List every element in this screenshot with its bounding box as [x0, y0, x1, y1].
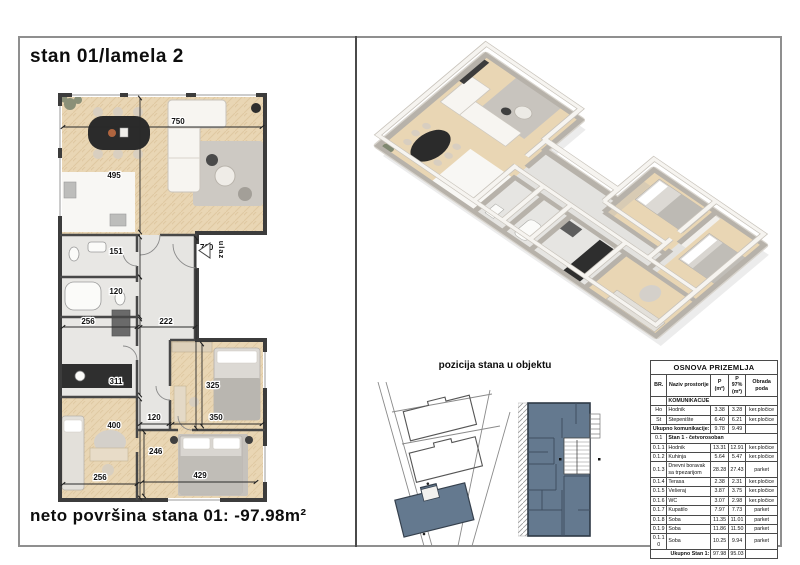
net-area-label: neto površina stana 01: -97.98m²: [30, 506, 306, 526]
table-title: OSNOVA PRIZEMLJA: [651, 361, 778, 375]
bedroom2-furniture: [170, 436, 253, 494]
table-row: 0.1.9Soba11.8611.50parket: [651, 524, 778, 533]
site-building-2: [408, 433, 482, 482]
table-row: 0.1.4Terasa2.382.31ker.pločice: [651, 478, 778, 487]
dim-label: 256: [93, 473, 107, 482]
table-row: 0.1.7Kupatilo7.977.73parket: [651, 506, 778, 515]
dim-label: 429: [193, 471, 207, 480]
panel-divider: [355, 36, 357, 547]
dim-label: 750: [171, 117, 185, 126]
side-table: [206, 154, 218, 166]
dim-label: 222: [159, 317, 173, 326]
table-row: 0.1.3Dnevni boravak sa trpezarijom28.282…: [651, 462, 778, 478]
table-title-row: OSNOVA PRIZEMLJA: [651, 361, 778, 375]
pouf: [238, 187, 252, 201]
total-row: Ukupno komunikacije:9.789.49: [651, 425, 778, 434]
col-header: Obrada poda: [746, 375, 778, 397]
col-header: P (m²): [711, 375, 728, 397]
table-header-row: BR.Naziv prostorijeP (m²)P 97% (m²)Obrad…: [651, 375, 778, 397]
dim-label: 120: [109, 287, 123, 296]
table-row: 0.1.2Kuhinja5.645.47ker.pločice: [651, 453, 778, 462]
table-row: 0.1.10Soba10.259.94parket: [651, 534, 778, 550]
position-label: pozicija stana u objektu: [380, 360, 610, 371]
floor-lamp: [251, 103, 261, 113]
table-row: HoHodnik3.383.28ker.pločice: [651, 406, 778, 415]
dim-label: 400: [107, 421, 121, 430]
table-row: StStepenište6.406.21ker.pločice: [651, 415, 778, 424]
table-row: 0.1.8Soba11.3511.01parket: [651, 515, 778, 524]
col-header: P 97% (m²): [728, 375, 745, 397]
dim-label: 311: [110, 377, 123, 386]
dim-label: 325: [206, 381, 220, 390]
dim-label: 256: [81, 317, 95, 326]
dim-label: 151: [109, 247, 123, 256]
dim-label: 246: [149, 447, 163, 456]
apartment-title: stan 01/lamela 2: [30, 46, 184, 68]
dim-label: 120: [147, 413, 161, 422]
section-hatch-strip: [518, 403, 528, 536]
section-row: 0.1Stan 1 - četvorosoban: [651, 434, 778, 443]
col-header: Naziv prostorije: [667, 375, 711, 397]
drawing-sheet: stan 01/lamela 2 neto površina stana 01:…: [0, 0, 800, 565]
table-row: 0.1.1Hodnik13.3112.91ker.pločice: [651, 443, 778, 452]
section-plan: [518, 398, 604, 540]
section-stairs: [564, 438, 590, 474]
col-header: BR.: [651, 375, 667, 397]
area-table: OSNOVA PRIZEMLJA BR.Naziv prostorijeP (m…: [650, 360, 778, 559]
dim-label: 350: [209, 413, 223, 422]
washing-machine: [112, 310, 130, 336]
total-row: Ukupno Stan 1:97.9895.03: [651, 549, 778, 558]
floor-plan: 750 495 151 120 256 222 760 311 400 325 …: [28, 86, 328, 508]
entrance-label: ulaz: [217, 241, 226, 260]
table-row: 0.1.5Vešeraj3.873.75ker.pločice: [651, 487, 778, 496]
section-row: KOMUNIKACIJE: [651, 397, 778, 406]
table-row: 0.1.6WC3.072.98ker.pločice: [651, 496, 778, 505]
coffee-table: [215, 166, 235, 186]
site-plan: [372, 382, 517, 546]
dim-label: 495: [107, 171, 121, 180]
iso-view: [358, 34, 788, 352]
section-balcony: [590, 414, 600, 438]
dining-set: [88, 107, 150, 159]
